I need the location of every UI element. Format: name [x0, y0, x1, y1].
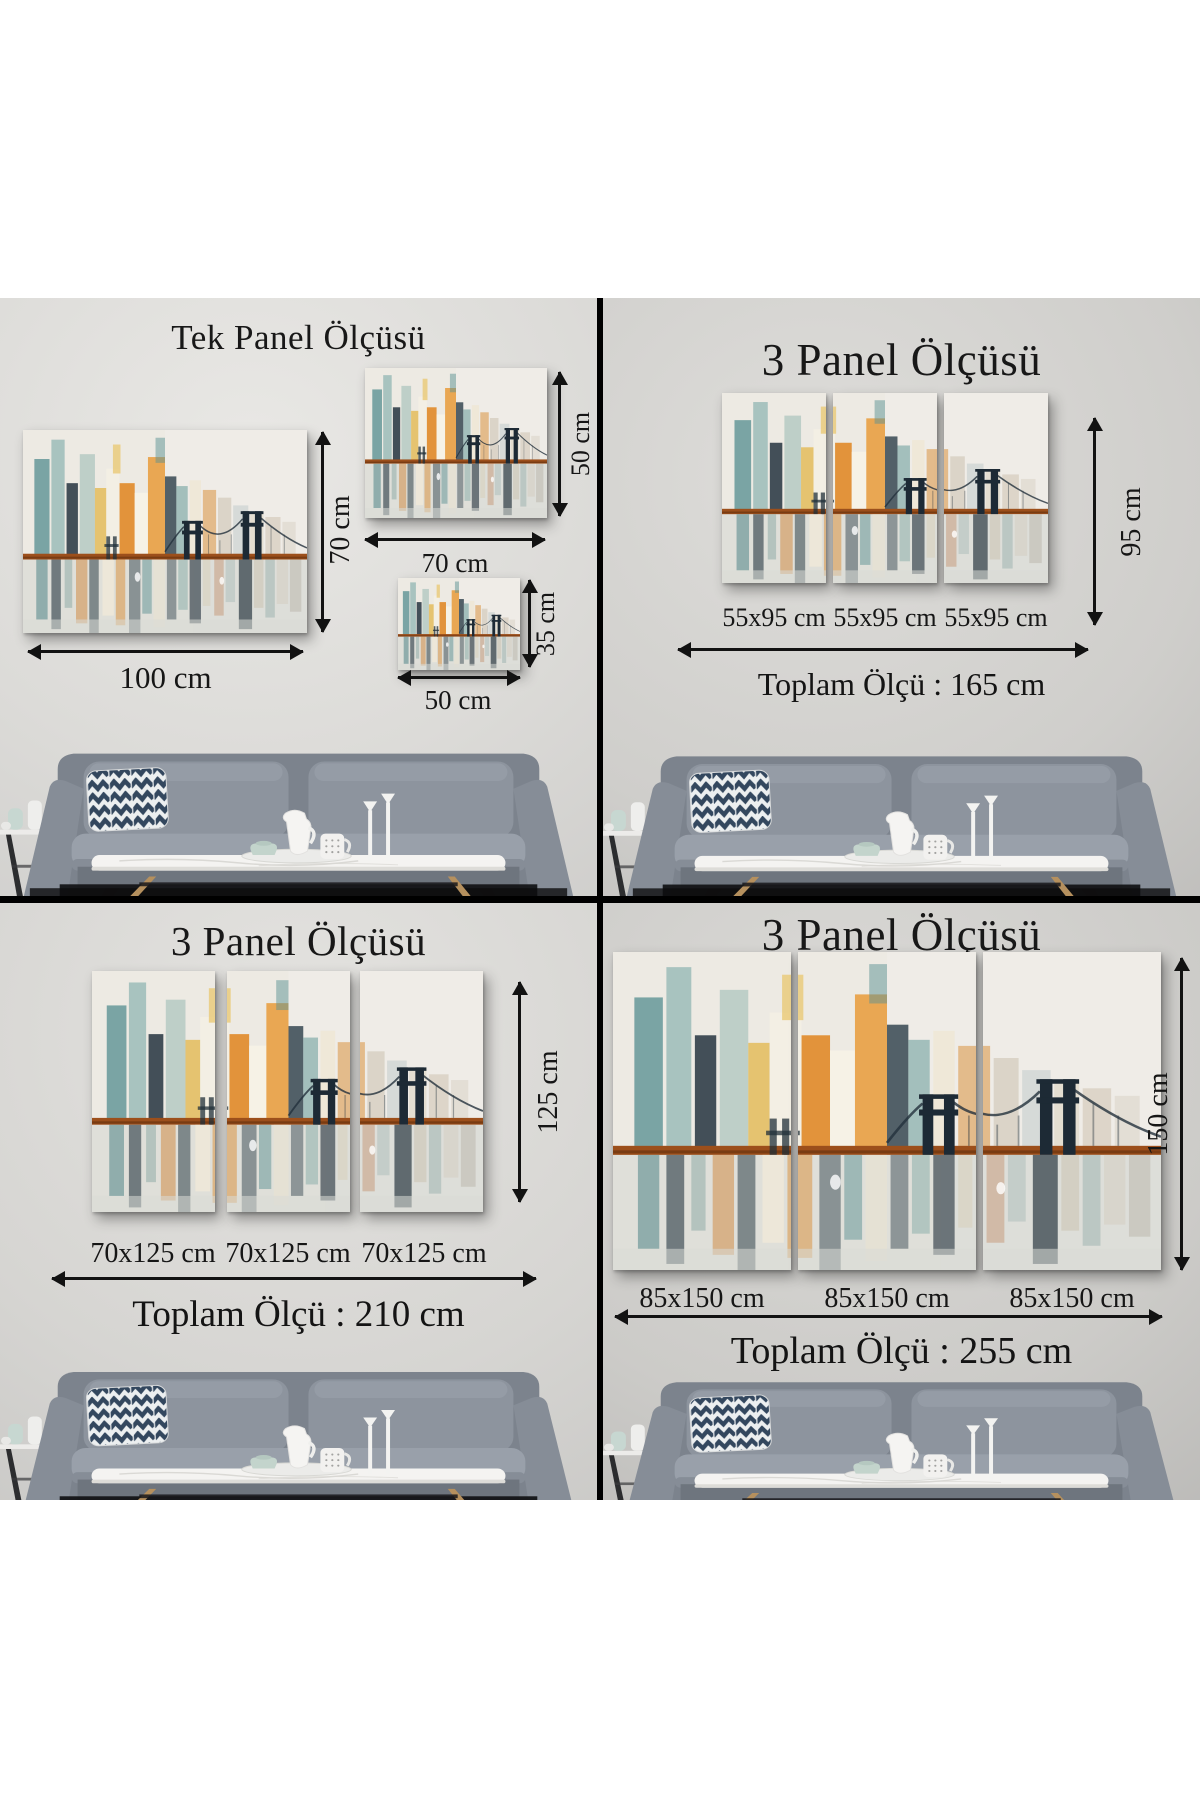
panel-size-label-2: 85x150 cm: [812, 1283, 962, 1315]
height-dimension-label-small: 35 cm: [530, 524, 562, 724]
width-dimension-label-medium: 70 cm: [365, 548, 545, 579]
width-dimension-arrow-large: [28, 650, 303, 653]
height-dimension-arrow: [1180, 958, 1183, 1270]
width-dimension-arrow-small: [398, 676, 520, 679]
sofa-scene: [0, 740, 597, 896]
artwork-image: [833, 393, 937, 583]
height-dimension-arrow: [518, 982, 521, 1202]
section-tek-panel: Tek Panel Ölçüsü 70 cm 100 cm 50 cm 70 c…: [0, 298, 597, 896]
artwork-panel-3: [983, 952, 1161, 1270]
living-room-sofa-photo: [0, 1359, 597, 1500]
section-title: 3 Panel Ölçüsü: [0, 917, 597, 965]
living-room-sofa-photo: [0, 740, 597, 896]
sofa-scene: [0, 1359, 597, 1500]
artwork-image: [944, 393, 1048, 583]
total-width-arrow: [615, 1315, 1162, 1318]
artwork-panel-2: [833, 393, 937, 583]
artwork-panel-2: [798, 952, 976, 1270]
height-dimension-label: 95 cm: [1116, 422, 1148, 622]
width-dimension-label-small: 50 cm: [388, 685, 528, 716]
height-dimension-label-large: 70 cm: [325, 430, 357, 630]
product-size-infographic: Tek Panel Ölçüsü 70 cm 100 cm 50 cm 70 c…: [0, 0, 1200, 1800]
artwork-panel-1: [722, 393, 826, 583]
artwork-image: [398, 578, 520, 670]
total-size-label: Toplam Ölçü : 255 cm: [603, 1329, 1200, 1373]
artwork-image: [92, 971, 215, 1212]
artwork-panel-2: [227, 971, 350, 1212]
living-room-sofa-photo: [603, 1370, 1200, 1500]
total-width-arrow: [678, 648, 1088, 651]
total-size-label: Toplam Ölçü : 165 cm: [603, 666, 1200, 703]
section-title: 3 Panel Ölçüsü: [603, 334, 1200, 386]
panel-size-label-1: 55x95 cm: [718, 603, 830, 633]
panel-size-label-3: 85x150 cm: [997, 1283, 1147, 1315]
artwork-image: [798, 952, 976, 1270]
height-dimension-arrow-medium: [558, 372, 561, 516]
artwork-canvas-medium: [365, 368, 547, 518]
total-width-arrow: [52, 1277, 536, 1280]
quadrant-grid: Tek Panel Ölçüsü 70 cm 100 cm 50 cm 70 c…: [0, 298, 1200, 1500]
height-dimension-label: 125 cm: [533, 992, 565, 1192]
height-dimension-label: 150 cm: [1143, 1014, 1175, 1214]
artwork-panel-1: [613, 952, 791, 1270]
panel-size-label-2: 70x125 cm: [221, 1238, 355, 1270]
section-3panel-150: 3 Panel Ölçüsü 150 cm 85x150 cm 85x150 c…: [603, 903, 1200, 1500]
sofa-scene: [603, 743, 1200, 896]
section-title: Tek Panel Ölçüsü: [0, 318, 597, 358]
artwork-image: [365, 368, 547, 518]
height-dimension-arrow: [1093, 418, 1096, 625]
panel-size-label-1: 85x150 cm: [627, 1283, 777, 1315]
living-room-sofa-photo: [603, 743, 1200, 896]
height-dimension-arrow-large: [321, 432, 324, 632]
artwork-image: [722, 393, 826, 583]
artwork-panel-1: [92, 971, 215, 1212]
panel-size-label-2: 55x95 cm: [829, 603, 941, 633]
panel-size-label-3: 70x125 cm: [354, 1238, 494, 1270]
height-dimension-label-medium: 50 cm: [565, 344, 597, 544]
width-dimension-arrow-medium: [365, 538, 545, 541]
artwork-image: [983, 952, 1161, 1270]
panel-size-label-1: 70x125 cm: [86, 1238, 220, 1270]
section-3panel-95: 3 Panel Ölçüsü 95 cm 55x95 cm 55x95 cm 5…: [603, 298, 1200, 896]
width-dimension-label-large: 100 cm: [28, 660, 303, 696]
artwork-image: [360, 971, 483, 1212]
section-3panel-125: 3 Panel Ölçüsü 125 cm 70x125 cm 70x125 c…: [0, 903, 597, 1500]
artwork-canvas-small: [398, 578, 520, 670]
artwork-panel-3: [360, 971, 483, 1212]
total-size-label: Toplam Ölçü : 210 cm: [0, 1293, 597, 1336]
artwork-image: [227, 971, 350, 1212]
artwork-image: [23, 430, 307, 633]
panel-size-label-3: 55x95 cm: [940, 603, 1052, 633]
artwork-panel-3: [944, 393, 1048, 583]
artwork-canvas-large: [23, 430, 307, 633]
artwork-image: [613, 952, 791, 1270]
sofa-scene: [603, 1370, 1200, 1500]
